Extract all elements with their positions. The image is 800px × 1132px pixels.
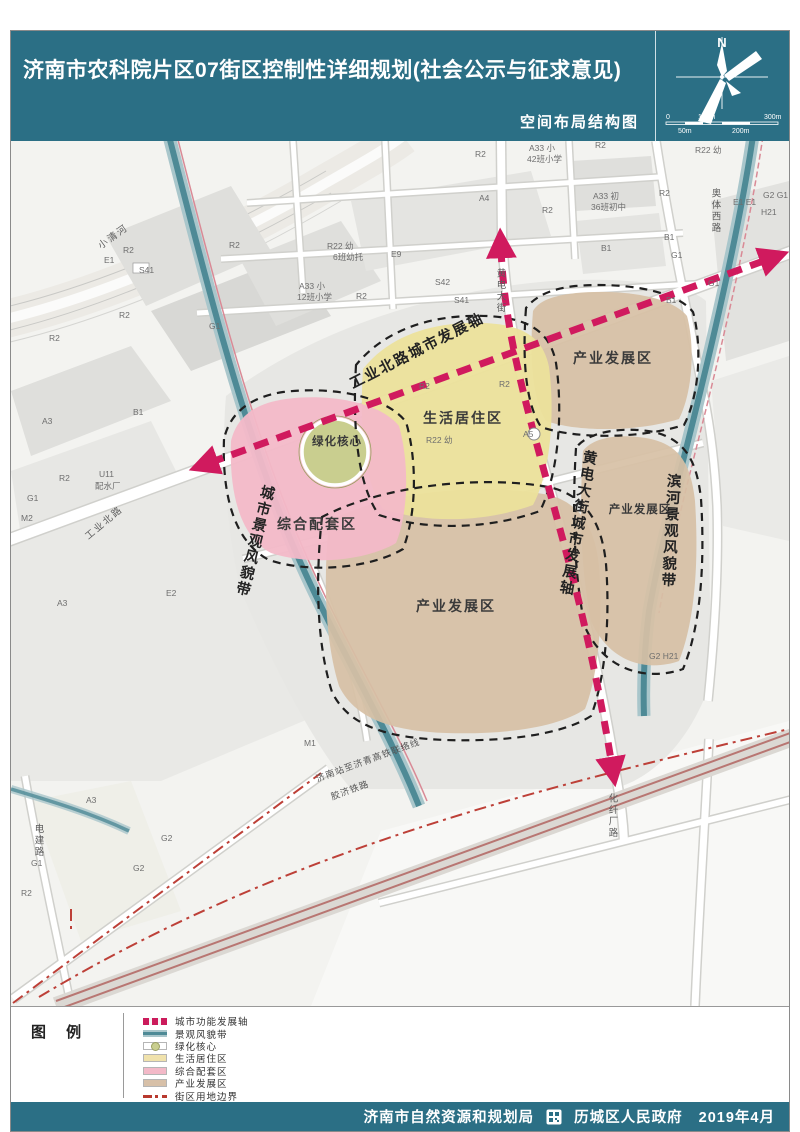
road-label-aotixilu: 奥体西路	[710, 187, 722, 234]
legend-label: 街区用地边界	[175, 1089, 238, 1103]
footer-date: 2019年4月	[699, 1106, 775, 1127]
parcel-code: R2	[59, 473, 70, 483]
road-label-huangdiandajie: 黄电大街	[495, 267, 507, 314]
legend-items: 城市功能发展轴 景观风貌带 绿化核心 生活居住区 综合配套区	[143, 1015, 249, 1102]
parcel-code: A3	[86, 795, 97, 805]
parcel-code: G2 H21	[649, 651, 679, 661]
seal-qr-icon	[546, 1109, 562, 1125]
svg-text:50m: 50m	[678, 128, 692, 135]
parcel-code: G1	[708, 278, 720, 288]
parcel-code: G1	[671, 250, 683, 260]
map-canvas: 工业北路城市发展轴城市景观风貌带黄电大街城市发展轴滨河景观风貌带生活居住区综合配…	[11, 141, 789, 1006]
page-subtitle: 空间布局结构图	[520, 111, 639, 132]
parcel-code: R2	[21, 888, 32, 898]
parcel-code: E9	[391, 249, 402, 259]
parcel-code: B1	[666, 295, 677, 305]
parcel-code: R2	[659, 188, 670, 198]
parcel-code: M1	[304, 738, 316, 748]
legend-row-band: 景观风貌带	[143, 1027, 249, 1039]
parcel-code: 配水厂	[95, 481, 121, 491]
parcel-code: 12班小学	[297, 292, 332, 302]
footer-agency-right: 历城区人民政府	[574, 1106, 683, 1127]
legend-panel: 图 例 城市功能发展轴 景观风貌带 绿化核心 生活居住区	[11, 1006, 789, 1104]
compass-panel: N 0 100m 300m	[655, 31, 789, 141]
parcel-code: A4	[479, 193, 490, 203]
legend-row-residential: 生活居住区	[143, 1052, 249, 1064]
parcel-code: E2	[166, 588, 177, 598]
legend-swatch-band	[143, 1030, 167, 1037]
parcel-code: A33 小	[529, 143, 555, 153]
svg-text:0: 0	[666, 114, 670, 121]
legend-swatch-axis	[143, 1018, 167, 1025]
zone-label-industry-c: 产业发展区	[416, 598, 496, 614]
parcel-code: R2	[49, 333, 60, 343]
parcel-code: E1 E1	[733, 197, 756, 207]
zone-label-industry-ne: 产业发展区	[573, 350, 653, 366]
parcel-code: B1	[664, 232, 675, 242]
parcel-code: G1	[31, 858, 43, 868]
parcel-code: 36班初中	[591, 202, 626, 212]
parcel-code: H21	[761, 207, 777, 217]
parcel-code: R22 幼	[327, 241, 353, 251]
parcel-code: G2 G1	[763, 190, 788, 200]
parcel-code: A3	[57, 598, 68, 608]
zone-label-mixed: 综合配套区	[277, 516, 357, 532]
legend-swatch-industry	[143, 1079, 167, 1087]
compass-rose-icon	[676, 37, 768, 124]
parcel-code: 6班幼托	[333, 252, 364, 262]
plan-poster: 济南市农科院片区07街区控制性详细规划(社会公示与征求意见) 空间布局结构图 N	[0, 0, 800, 1132]
legend-swatch-residential	[143, 1054, 167, 1062]
parcel-code: R2	[475, 149, 486, 159]
parcel-code: 42班小学	[527, 154, 562, 164]
legend-swatch-boundary	[143, 1095, 167, 1098]
plan-map-svg: 工业北路城市发展轴城市景观风貌带黄电大街城市发展轴滨河景观风貌带生活居住区综合配…	[11, 141, 789, 1006]
parcel-code: A33 初	[593, 191, 619, 201]
svg-text:100m: 100m	[698, 114, 716, 121]
parcel-code: S41	[454, 295, 469, 305]
legend-row-industry: 产业发展区	[143, 1077, 249, 1089]
parcel-code: A33 小	[299, 281, 325, 291]
map-sheet: 济南市农科院片区07街区控制性详细规划(社会公示与征求意见) 空间布局结构图 N	[10, 30, 790, 1132]
legend-row-boundary: 街区用地边界	[143, 1089, 249, 1101]
parcel-code: E1	[104, 255, 115, 265]
parcel-code: S42	[435, 277, 450, 287]
legend-row-axis: 城市功能发展轴	[143, 1015, 249, 1027]
parcel-code: M2	[21, 513, 33, 523]
parcel-code: U11	[99, 469, 114, 479]
zone-label-residential: 生活居住区	[423, 410, 503, 426]
parcel-code: R2	[595, 141, 606, 150]
svg-text:200m: 200m	[732, 128, 750, 135]
parcel-code: R22 幼	[426, 435, 452, 445]
header-bar: 济南市农科院片区07街区控制性详细规划(社会公示与征求意见) 空间布局结构图 N	[11, 31, 789, 141]
parcel-code: A5	[523, 429, 534, 439]
legend-row-mixed: 综合配套区	[143, 1065, 249, 1077]
parcel-code: R2	[119, 310, 130, 320]
road-label-huaxianchanglu: 化纤厂路	[607, 792, 619, 839]
legend-divider	[123, 1013, 124, 1098]
legend-swatch-green-core	[143, 1042, 167, 1050]
parcel-code: S41	[139, 265, 154, 275]
parcel-code: R22 幼	[695, 145, 721, 155]
parcel-code: R2	[419, 381, 430, 391]
parcel-code: G2	[161, 833, 173, 843]
parcel-code: R2	[123, 245, 134, 255]
parcel-code: B1	[601, 243, 612, 253]
page-title: 济南市农科院片区07街区控制性详细规划(社会公示与征求意见)	[23, 57, 643, 84]
svg-text:300m: 300m	[764, 114, 782, 121]
footer-agency-left: 济南市自然资源和规划局	[364, 1106, 535, 1127]
parcel-code: G1	[27, 493, 39, 503]
parcel-code: R2	[499, 379, 510, 389]
zone-label-green-core: 绿化核心	[312, 434, 362, 448]
parcel-code: B1	[133, 407, 144, 417]
legend-swatch-mixed	[143, 1067, 167, 1075]
parcel-code: R2	[356, 291, 367, 301]
road-label-dianjianlu: 电建路	[33, 823, 45, 858]
parcel-code: G1	[209, 321, 221, 331]
north-compass: N 0 100m 300m	[656, 31, 789, 140]
parcel-code: G2	[133, 863, 145, 873]
legend-row-green-core: 绿化核心	[143, 1040, 249, 1052]
scale-bar: 0 100m 300m 50m 200m	[666, 114, 782, 135]
footer-bar: 济南市自然资源和规划局 历城区人民政府 2019年4月	[11, 1102, 789, 1131]
zone-label-industry-e: 产业发展区	[609, 502, 672, 516]
parcel-code: R2	[229, 240, 240, 250]
parcel-code: A3	[42, 416, 53, 426]
parcel-code: R2	[542, 205, 553, 215]
legend-title: 图 例	[31, 1021, 89, 1042]
zone-industry-east	[581, 436, 696, 665]
